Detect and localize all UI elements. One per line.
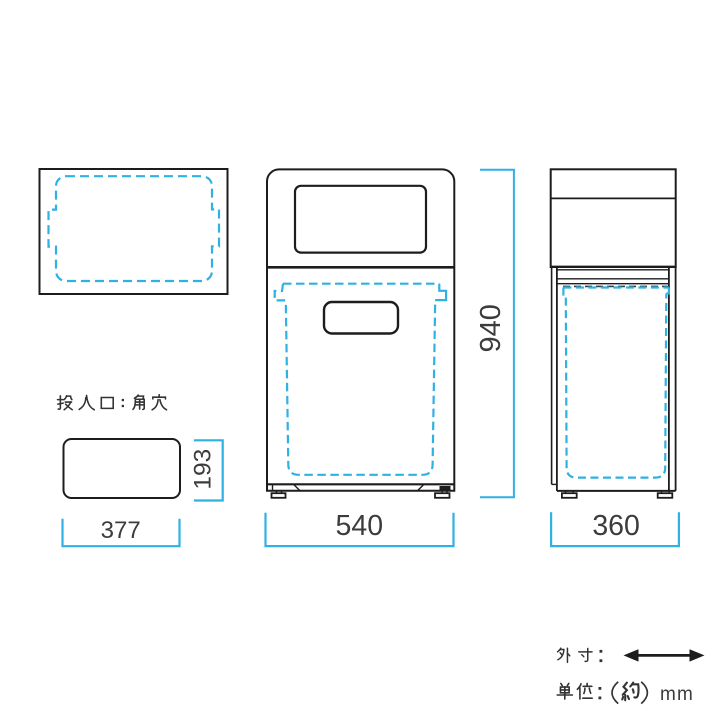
svg-text:193: 193 — [189, 449, 216, 490]
svg-text:mm: mm — [660, 684, 694, 705]
svg-text:940: 940 — [475, 304, 507, 352]
svg-text:377: 377 — [101, 517, 141, 544]
svg-text:540: 540 — [336, 510, 384, 542]
svg-text:360: 360 — [592, 510, 640, 542]
